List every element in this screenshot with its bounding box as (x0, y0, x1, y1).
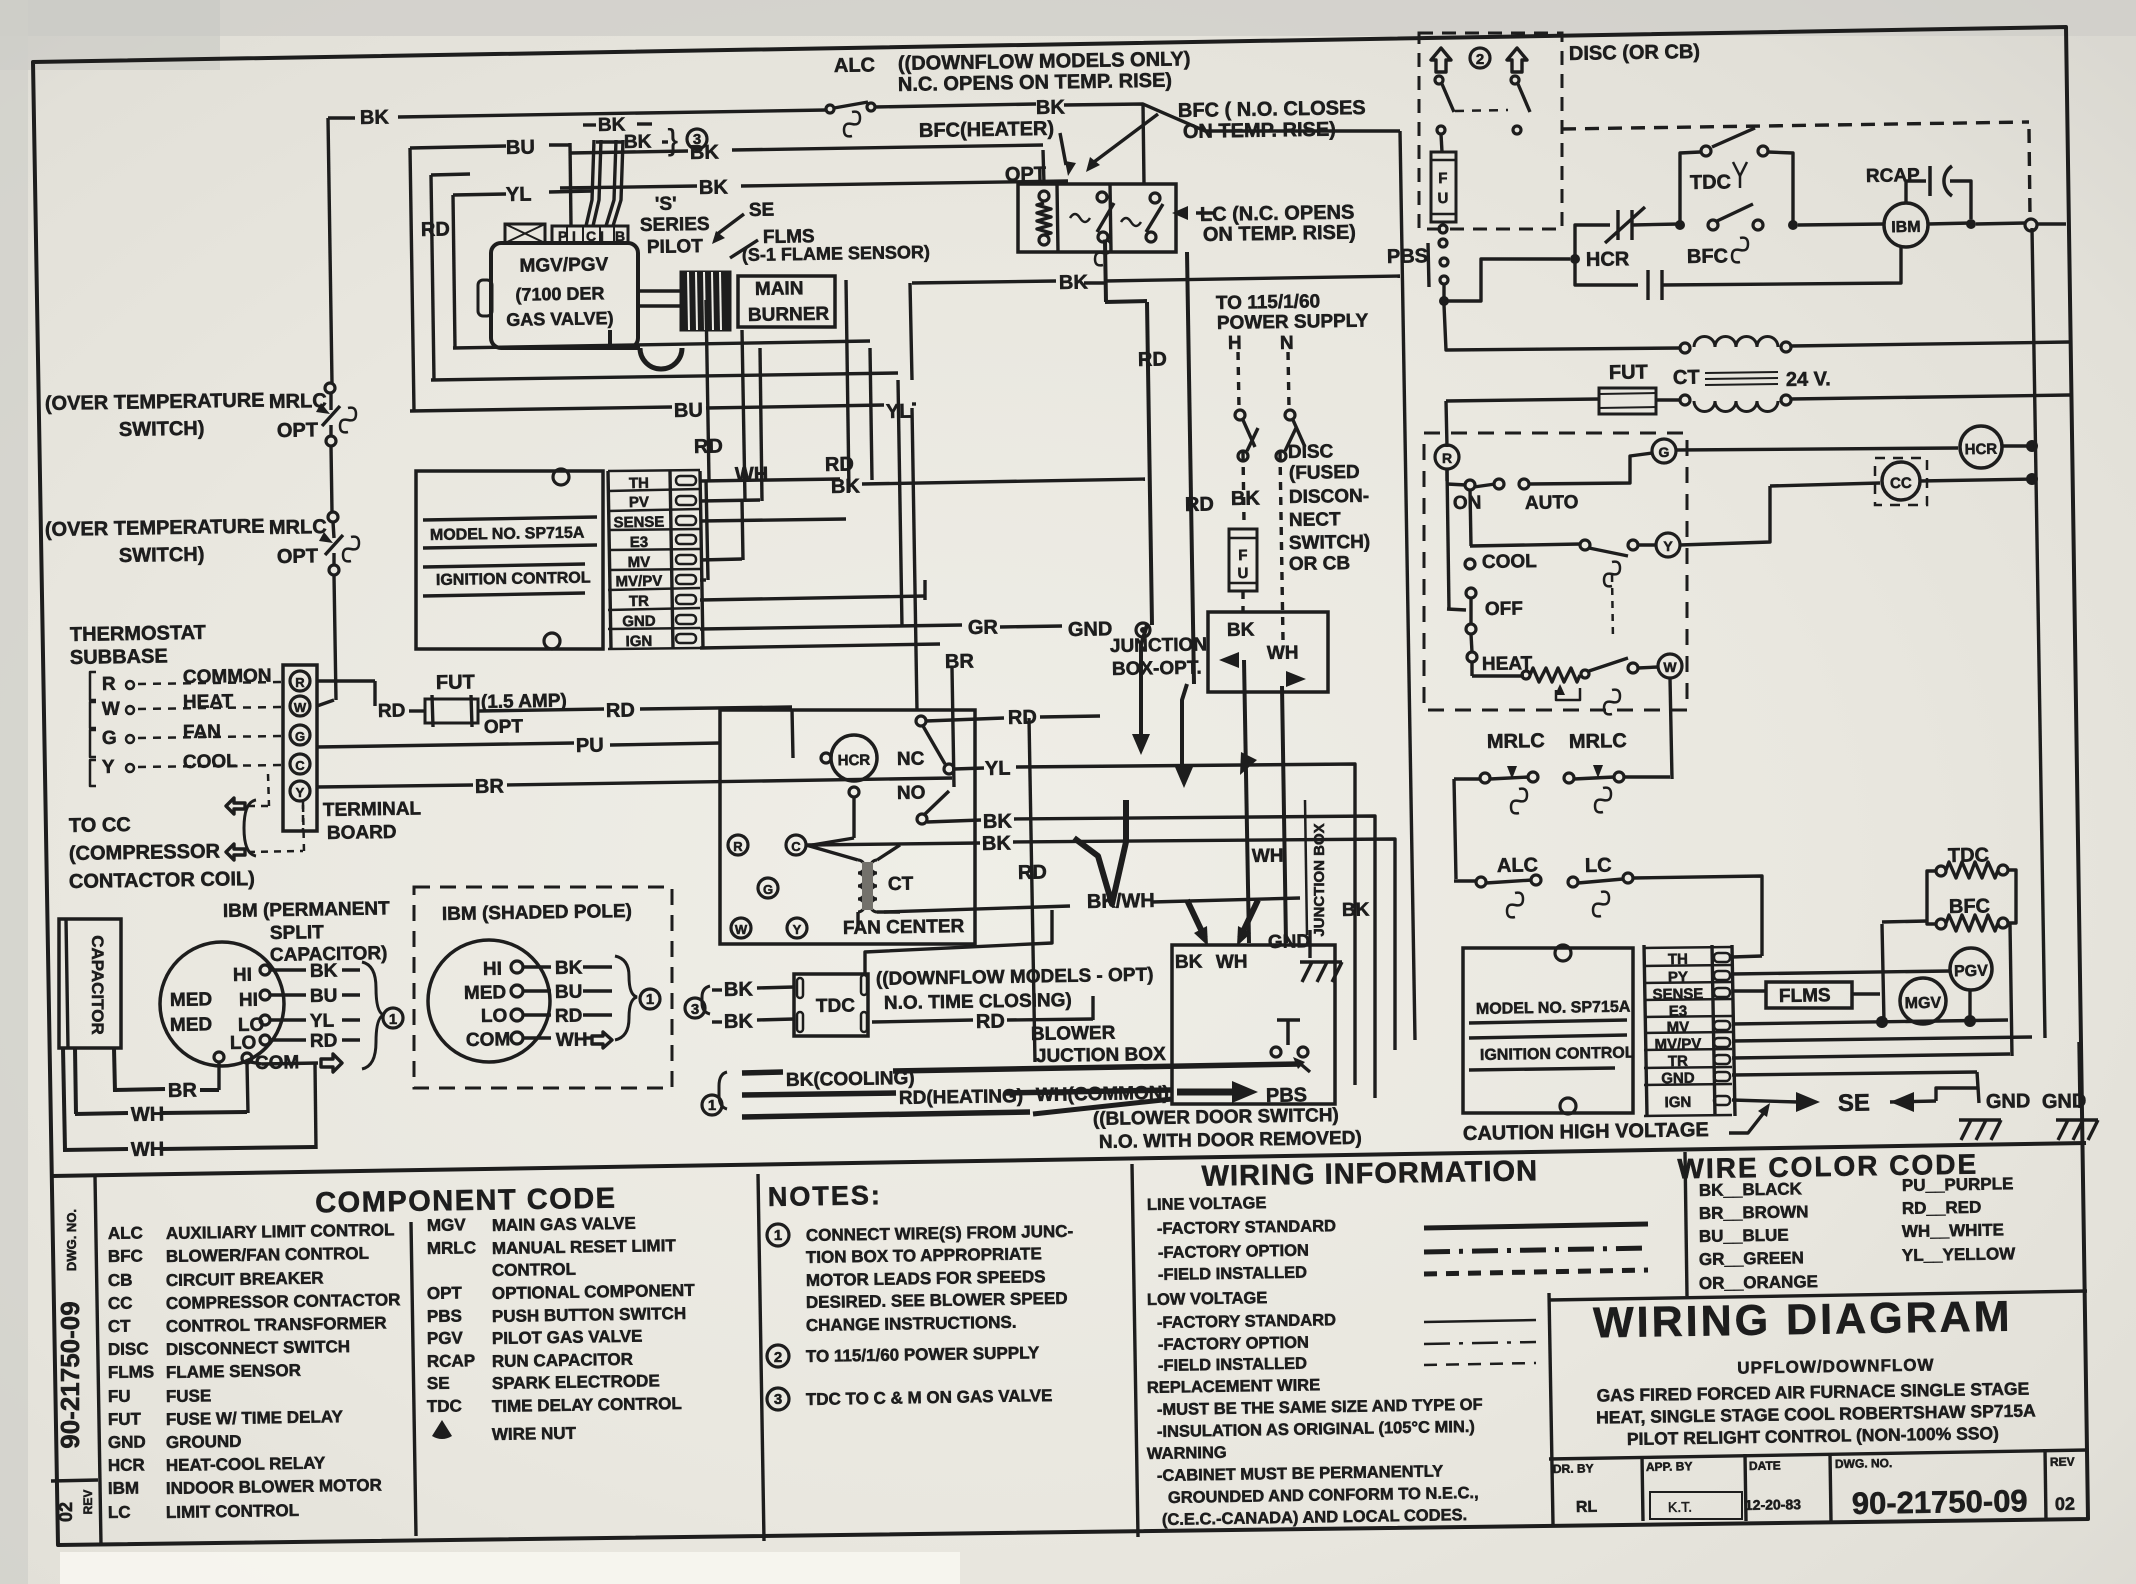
svg-text:AUXILIARY LIMIT CONTROL: AUXILIARY LIMIT CONTROL (166, 1220, 395, 1243)
svg-text:COOL: COOL (1482, 551, 1538, 573)
svg-text:PBS: PBS (1266, 1084, 1307, 1107)
svg-text:N.O. WITH DOOR REMOVED): N.O. WITH DOOR REMOVED) (1099, 1128, 1362, 1153)
svg-text:BK__BLACK: BK__BLACK (1699, 1179, 1803, 1200)
svg-text:IGNITION CONTROL: IGNITION CONTROL (436, 570, 591, 589)
svg-text:1: 1 (708, 1097, 716, 1114)
svg-text:MGV/PGV: MGV/PGV (519, 254, 608, 276)
svg-text:NECT: NECT (1289, 509, 1341, 531)
svg-text:DISC: DISC (1288, 441, 1334, 463)
svg-text:CT: CT (888, 874, 914, 895)
svg-text:C: C (295, 758, 305, 773)
svg-text:OPT: OPT (427, 1283, 463, 1303)
svg-text:TDC: TDC (816, 995, 856, 1017)
svg-text:BK: BK (982, 833, 1012, 855)
svg-text:DATE: DATE (1749, 1458, 1781, 1473)
svg-text:BLOWER/FAN CONTROL: BLOWER/FAN CONTROL (166, 1244, 369, 1266)
svg-text:COMMON: COMMON (183, 666, 272, 688)
svg-text:BU: BU (506, 137, 535, 159)
svg-text:PGV: PGV (1954, 963, 1988, 981)
svg-text:MODEL NO. SP715A: MODEL NO. SP715A (1476, 999, 1631, 1018)
svg-text:G: G (1659, 444, 1670, 460)
svg-text:COMPRESSOR CONTACTOR: COMPRESSOR CONTACTOR (166, 1290, 401, 1313)
svg-text:2: 2 (774, 1349, 782, 1366)
svg-text:Y: Y (793, 922, 802, 937)
svg-text:RD: RD (1138, 349, 1167, 371)
svg-text:BK: BK (1227, 620, 1255, 641)
svg-text:FUSE W/ TIME DELAY: FUSE W/ TIME DELAY (166, 1407, 344, 1429)
svg-text:BK: BK (1231, 488, 1261, 510)
svg-text:BLOWER: BLOWER (1031, 1023, 1116, 1045)
svg-text:'S': 'S' (655, 194, 677, 215)
svg-text:BK: BK (555, 958, 583, 979)
svg-text:RD__RED: RD__RED (1902, 1198, 1982, 1218)
svg-text:JUCTION BOX: JUCTION BOX (1036, 1044, 1166, 1067)
svg-text:OPT: OPT (277, 545, 318, 568)
svg-text:2: 2 (1476, 51, 1484, 68)
svg-text:FUT: FUT (108, 1409, 142, 1429)
svg-text:P: P (558, 228, 567, 244)
svg-text:HI: HI (483, 959, 502, 980)
svg-text:SWITCH): SWITCH) (119, 418, 205, 441)
svg-text:RD: RD (976, 1011, 1005, 1033)
svg-text:CC: CC (1890, 475, 1912, 492)
svg-text:ALC: ALC (834, 54, 875, 77)
svg-text:MAIN: MAIN (755, 278, 804, 300)
svg-text:I: I (600, 228, 604, 244)
svg-text:-FACTORY STANDARD: -FACTORY STANDARD (1157, 1217, 1336, 1238)
svg-text:WH: WH (556, 1029, 588, 1051)
svg-text:WH: WH (131, 1103, 165, 1126)
svg-text:PBS: PBS (1387, 245, 1428, 268)
svg-text:3: 3 (774, 1391, 782, 1408)
svg-text:IGN: IGN (1664, 1094, 1691, 1111)
svg-text:-FIELD INSTALLED: -FIELD INSTALLED (1158, 1355, 1307, 1375)
svg-text:GAS VALVE): GAS VALVE) (506, 308, 614, 330)
svg-text:BK: BK (310, 961, 338, 982)
svg-text:N: N (1280, 333, 1294, 354)
svg-text:REPLACEMENT WIRE: REPLACEMENT WIRE (1147, 1376, 1321, 1397)
svg-text:DISCONNECT SWITCH: DISCONNECT SWITCH (166, 1337, 350, 1359)
svg-text:IBM (SHADED POLE): IBM (SHADED POLE) (442, 901, 632, 925)
svg-text:YL: YL (506, 184, 532, 206)
svg-text:MRLC: MRLC (269, 516, 327, 539)
svg-text:CAUTION HIGH VOLTAGE: CAUTION HIGH VOLTAGE (1463, 1119, 1709, 1145)
svg-text:RD(HEATING): RD(HEATING) (899, 1086, 1024, 1109)
svg-text:PILOT: PILOT (647, 236, 704, 258)
svg-text:BK/WH: BK/WH (1087, 890, 1155, 913)
svg-text:BK: BK (724, 979, 754, 1001)
svg-text:BURNER: BURNER (748, 304, 830, 326)
svg-text:WIRE NUT: WIRE NUT (492, 1424, 577, 1444)
svg-text:02: 02 (56, 1502, 76, 1522)
svg-text:CC: CC (108, 1294, 133, 1313)
svg-text:UPFLOW/DOWNFLOW: UPFLOW/DOWNFLOW (1737, 1355, 1935, 1377)
svg-text:ON: ON (1453, 493, 1482, 514)
svg-text:BK: BK (699, 177, 729, 199)
svg-text:RD: RD (1018, 862, 1047, 884)
svg-text:1: 1 (389, 1011, 397, 1028)
svg-text:RD: RD (825, 454, 854, 476)
svg-text:POWER SUPPLY: POWER SUPPLY (1217, 311, 1369, 334)
svg-text:(FUSED: (FUSED (1289, 462, 1360, 484)
svg-text:IBM (PERMANENT: IBM (PERMANENT (223, 898, 390, 922)
svg-text:OPTIONAL COMPONENT: OPTIONAL COMPONENT (492, 1281, 696, 1303)
svg-text:SPLIT: SPLIT (270, 922, 325, 944)
svg-text:THERMOSTAT: THERMOSTAT (70, 622, 206, 646)
svg-text:U: U (1237, 565, 1248, 582)
svg-text:BU: BU (555, 982, 583, 1003)
svg-text:90-21750-09: 90-21750-09 (1852, 1483, 2028, 1521)
svg-text:W: W (735, 922, 748, 937)
svg-text:MED: MED (464, 982, 507, 1004)
svg-text:PU: PU (576, 735, 604, 757)
svg-text:DWG. NO.: DWG. NO. (64, 1209, 79, 1271)
svg-text:F: F (1438, 170, 1447, 187)
svg-text:CAPACITOR: CAPACITOR (88, 935, 107, 1035)
svg-text:IBM: IBM (108, 1479, 139, 1498)
svg-text:((DOWNFLOW MODELS - OPT): ((DOWNFLOW MODELS - OPT) (876, 965, 1154, 990)
svg-text:DISCON-: DISCON- (1289, 486, 1370, 508)
svg-text:CT: CT (108, 1317, 132, 1336)
svg-text:MANUAL RESET LIMIT: MANUAL RESET LIMIT (492, 1236, 677, 1258)
svg-text:ON TEMP. RISE): ON TEMP. RISE) (1203, 222, 1356, 246)
svg-text:CONTROL TRANSFORMER: CONTROL TRANSFORMER (166, 1313, 387, 1336)
svg-text:RCAP: RCAP (427, 1351, 475, 1371)
svg-text:LO: LO (481, 1006, 508, 1027)
svg-text:IBM: IBM (1891, 219, 1921, 236)
svg-text:HI: HI (239, 990, 258, 1011)
svg-text:R: R (295, 675, 305, 690)
svg-text:TDC: TDC (1690, 171, 1731, 194)
svg-text:WH__WHITE: WH__WHITE (1902, 1220, 2004, 1241)
svg-text:SPARK ELECTRODE: SPARK ELECTRODE (492, 1371, 660, 1393)
svg-text:PUSH BUTTON SWITCH: PUSH BUTTON SWITCH (492, 1304, 687, 1326)
svg-text:BK: BK (831, 476, 861, 498)
svg-text:TERMINAL: TERMINAL (323, 798, 422, 821)
svg-text:RD: RD (555, 1006, 583, 1027)
svg-text:WIRING INFORMATION: WIRING INFORMATION (1201, 1155, 1538, 1192)
svg-text:MRLC: MRLC (1487, 730, 1545, 753)
svg-text:Y: Y (102, 757, 115, 778)
svg-text:RD: RD (378, 701, 406, 722)
svg-text:K.T.: K.T. (1668, 1499, 1692, 1515)
svg-text:B: B (615, 228, 625, 244)
svg-text:I: I (572, 228, 576, 244)
svg-text:ALC: ALC (1497, 854, 1538, 877)
svg-text:BFC(HEATER): BFC(HEATER) (919, 118, 1055, 142)
svg-text:GND: GND (1268, 931, 1311, 953)
svg-text:SUBBASE: SUBBASE (70, 645, 168, 669)
svg-text:OR__ORANGE: OR__ORANGE (1699, 1272, 1818, 1293)
svg-text:CIRCUIT BREAKER: CIRCUIT BREAKER (166, 1268, 324, 1290)
svg-text:SE: SE (1838, 1089, 1870, 1117)
svg-text:G: G (763, 882, 773, 897)
svg-text:COM: COM (466, 1029, 511, 1051)
svg-text:PV: PV (629, 494, 649, 511)
svg-text:R: R (733, 839, 743, 854)
svg-text:GROUND: GROUND (166, 1432, 242, 1452)
svg-text:FU: FU (108, 1387, 131, 1406)
svg-text:HCR: HCR (1965, 441, 1998, 459)
svg-text:DWG. NO.: DWG. NO. (1835, 1456, 1893, 1471)
svg-text:MV/PV: MV/PV (615, 573, 662, 591)
svg-text:RCAP: RCAP (1866, 165, 1920, 187)
svg-text:(S-1 FLAME SENSOR): (S-1 FLAME SENSOR) (742, 242, 930, 265)
svg-text:SE: SE (749, 200, 775, 221)
svg-text:FUT: FUT (1609, 361, 1648, 384)
svg-text:BR: BR (945, 651, 975, 673)
svg-text:BK: BK (598, 115, 626, 136)
svg-text:CONTROL: CONTROL (492, 1260, 576, 1280)
svg-text:INDOOR BLOWER MOTOR: INDOOR BLOWER MOTOR (166, 1476, 382, 1498)
svg-text:WH: WH (1252, 845, 1284, 867)
svg-text:FAN: FAN (183, 721, 221, 743)
svg-text:RD: RD (310, 1031, 338, 1052)
svg-text:MGV: MGV (427, 1215, 467, 1235)
svg-text:RUN CAPACITOR: RUN CAPACITOR (492, 1350, 633, 1371)
svg-text:MOTOR LEADS FOR SPEEDS: MOTOR LEADS FOR SPEEDS (806, 1267, 1046, 1290)
svg-text:HCR: HCR (108, 1455, 145, 1475)
svg-text:Y: Y (296, 785, 305, 800)
svg-text:MRLC: MRLC (269, 390, 327, 413)
svg-text:YL: YL (310, 1011, 335, 1032)
svg-text:BK: BK (724, 1011, 754, 1033)
svg-text:HI: HI (233, 965, 252, 986)
svg-text:TION BOX TO APPROPRIATE: TION BOX TO APPROPRIATE (806, 1244, 1042, 1267)
svg-text:-FACTORY STANDARD: -FACTORY STANDARD (1157, 1311, 1336, 1332)
svg-text:G: G (102, 728, 117, 749)
svg-text:RD: RD (694, 436, 723, 458)
svg-text:CT: CT (1673, 367, 1700, 389)
svg-text:R: R (1442, 450, 1452, 466)
svg-text:OR CB: OR CB (1289, 553, 1351, 575)
svg-text:TDC TO C & M ON GAS VALVE: TDC TO C & M ON GAS VALVE (806, 1386, 1053, 1409)
svg-text:PU__PURPLE: PU__PURPLE (1902, 1174, 2014, 1195)
svg-text:BFC: BFC (108, 1246, 143, 1266)
svg-text:G: G (295, 729, 305, 744)
svg-text:RL: RL (1576, 1499, 1598, 1516)
svg-text:MAIN GAS VALVE: MAIN GAS VALVE (492, 1214, 636, 1235)
svg-text:LIMIT CONTROL: LIMIT CONTROL (166, 1501, 299, 1522)
svg-text:BOX-OPT.: BOX-OPT. (1112, 658, 1202, 680)
svg-text:GND: GND (1986, 1090, 2031, 1113)
svg-text:W: W (1663, 659, 1677, 675)
svg-text:DISC: DISC (108, 1339, 149, 1359)
svg-text:HEAT: HEAT (183, 691, 234, 713)
svg-text:GND: GND (1068, 618, 1113, 641)
svg-text:BK: BK (1175, 952, 1203, 973)
svg-text:BK: BK (1036, 97, 1066, 119)
svg-text:-FACTORY OPTION: -FACTORY OPTION (1158, 1242, 1309, 1262)
svg-text:RD: RD (421, 219, 450, 241)
svg-text:FLMS: FLMS (108, 1362, 155, 1382)
svg-text:BK: BK (690, 142, 720, 164)
svg-text:LO: LO (230, 1033, 257, 1054)
svg-text:BFC: BFC (1687, 245, 1728, 268)
svg-text:NC: NC (897, 749, 925, 770)
svg-text:90-21750-09: 90-21750-09 (55, 1301, 85, 1448)
svg-text:JUNCTION BOX: JUNCTION BOX (1311, 823, 1328, 936)
svg-text:SWITCH): SWITCH) (119, 544, 205, 567)
svg-text:BU: BU (310, 986, 338, 1007)
svg-text:FUSE: FUSE (166, 1386, 212, 1406)
svg-text:BR: BR (475, 776, 505, 798)
svg-text:WH: WH (1216, 951, 1248, 973)
svg-text:JUNCTION: JUNCTION (1110, 634, 1207, 657)
svg-text:LOW VOLTAGE: LOW VOLTAGE (1147, 1289, 1268, 1309)
svg-text:24 V.: 24 V. (1786, 368, 1831, 391)
svg-text:ALC: ALC (108, 1223, 143, 1243)
svg-text:BK: BK (983, 811, 1013, 833)
svg-text:F: F (1238, 547, 1247, 564)
svg-text:BOARD: BOARD (327, 822, 397, 844)
svg-text:PILOT GAS VALVE: PILOT GAS VALVE (492, 1327, 643, 1348)
svg-text:ON TEMP. RISE): ON TEMP. RISE) (1183, 119, 1336, 143)
svg-text:(OVER TEMPERATURE: (OVER TEMPERATURE (45, 389, 265, 415)
svg-text:RD: RD (606, 700, 635, 722)
svg-text:BR: BR (168, 1080, 198, 1102)
svg-text:W: W (294, 700, 307, 715)
svg-text:BK: BK (360, 107, 390, 129)
svg-text:MRLC: MRLC (427, 1238, 476, 1258)
svg-text:COOL: COOL (183, 751, 239, 773)
svg-text:02: 02 (2055, 1494, 2075, 1514)
svg-text:BU__BLUE: BU__BLUE (1699, 1226, 1789, 1246)
svg-text:TO CC: TO CC (69, 814, 131, 837)
svg-text:((BLOWER DOOR SWITCH): ((BLOWER DOOR SWITCH) (1093, 1105, 1339, 1130)
svg-text:(OVER TEMPERATURE: (OVER TEMPERATURE (45, 515, 265, 541)
svg-text:LC: LC (108, 1503, 131, 1522)
svg-text:REV: REV (81, 1490, 95, 1515)
svg-text:BFC ( N.O. CLOSES: BFC ( N.O. CLOSES (1178, 97, 1366, 122)
svg-text:BR__BROWN: BR__BROWN (1699, 1202, 1809, 1223)
svg-text:MRLC: MRLC (1569, 730, 1627, 753)
svg-text:H: H (1228, 333, 1242, 354)
svg-text:BU: BU (674, 400, 703, 422)
svg-text:TO 115/1/60 POWER SUPPLY: TO 115/1/60 POWER SUPPLY (806, 1343, 1040, 1366)
svg-text:DISC (OR CB): DISC (OR CB) (1569, 41, 1700, 65)
svg-text:WIRING DIAGRAM: WIRING DIAGRAM (1593, 1293, 2013, 1348)
svg-text:WARNING: WARNING (1147, 1444, 1227, 1463)
svg-text:C: C (586, 228, 596, 244)
svg-text:NOTES:: NOTES: (768, 1180, 882, 1212)
svg-text:HCR: HCR (838, 752, 871, 770)
svg-text:OPT: OPT (277, 419, 318, 442)
svg-text:GR__GREEN: GR__GREEN (1699, 1248, 1804, 1269)
svg-text:MED: MED (170, 989, 213, 1011)
svg-text:REV: REV (2050, 1455, 2075, 1469)
svg-text:AUTO: AUTO (1525, 492, 1579, 514)
svg-text:BFC: BFC (1949, 895, 1990, 918)
svg-text:SWITCH): SWITCH) (1289, 532, 1371, 554)
svg-text:OFF: OFF (1485, 598, 1523, 620)
svg-text:WH: WH (131, 1138, 165, 1161)
svg-text:MODEL NO. SP715A: MODEL NO. SP715A (430, 525, 585, 544)
svg-text:FAN CENTER: FAN CENTER (843, 916, 965, 939)
svg-text:BK: BK (1342, 900, 1370, 921)
svg-text:FUT: FUT (436, 671, 475, 694)
svg-text:W: W (102, 699, 120, 720)
svg-text:N.C. OPENS ON TEMP. RISE): N.C. OPENS ON TEMP. RISE) (898, 70, 1172, 96)
svg-text:PGV: PGV (427, 1328, 464, 1348)
svg-text:MED: MED (170, 1014, 213, 1036)
svg-text:PBS: PBS (427, 1306, 462, 1326)
svg-text:TO 115/1/60: TO 115/1/60 (1216, 291, 1321, 314)
svg-text:R: R (102, 674, 116, 695)
svg-text:U: U (1437, 190, 1448, 207)
svg-text:TIME DELAY CONTROL: TIME DELAY CONTROL (492, 1394, 682, 1416)
svg-text:DR. BY: DR. BY (1553, 1461, 1594, 1476)
svg-text:TDC: TDC (1948, 844, 1989, 867)
svg-text:(7100 DER: (7100 DER (515, 283, 604, 304)
svg-text:HEAT-COOL RELAY: HEAT-COOL RELAY (166, 1453, 326, 1475)
svg-text:IGNITION CONTROL: IGNITION CONTROL (1480, 1045, 1635, 1064)
svg-text:TR: TR (629, 593, 649, 610)
svg-text:YL: YL (985, 758, 1011, 780)
svg-text:OPT: OPT (484, 716, 524, 738)
svg-text:GND: GND (108, 1432, 146, 1452)
svg-text:3: 3 (691, 1001, 699, 1018)
svg-text:Y: Y (1663, 538, 1673, 554)
svg-text:YL__YELLOW: YL__YELLOW (1902, 1244, 2017, 1265)
svg-text:CB: CB (108, 1271, 133, 1290)
svg-text:NO: NO (897, 783, 926, 804)
svg-text:GR: GR (968, 617, 999, 639)
svg-text:FLMS: FLMS (1779, 985, 1831, 1007)
svg-text:C: C (791, 839, 801, 854)
svg-text:APP. BY: APP. BY (1646, 1459, 1693, 1474)
svg-text:1: 1 (646, 991, 654, 1008)
svg-text:-FIELD INSTALLED: -FIELD INSTALLED (1158, 1264, 1307, 1284)
svg-text:CONTACTOR COIL): CONTACTOR COIL) (69, 868, 255, 893)
svg-text:HCR: HCR (1586, 248, 1630, 271)
svg-text:-FACTORY OPTION: -FACTORY OPTION (1158, 1334, 1309, 1354)
svg-text:FLAME SENSOR: FLAME SENSOR (166, 1361, 301, 1382)
svg-text:LC: LC (1585, 855, 1612, 877)
svg-text:RD: RD (1008, 707, 1037, 729)
svg-text:SE: SE (427, 1374, 450, 1393)
svg-text:LINE VOLTAGE: LINE VOLTAGE (1147, 1194, 1267, 1214)
svg-text:CHANGE INSTRUCTIONS.: CHANGE INSTRUCTIONS. (806, 1313, 1017, 1335)
svg-text:1: 1 (774, 1227, 782, 1244)
svg-text:12-20-83: 12-20-83 (1745, 1496, 1802, 1513)
svg-text:WH: WH (1267, 642, 1299, 664)
svg-text:SERIES: SERIES (640, 214, 710, 236)
svg-text:(COMPRESSOR: (COMPRESSOR (69, 841, 221, 865)
svg-text:MGV: MGV (1905, 995, 1942, 1013)
svg-text:RD: RD (1185, 494, 1214, 516)
svg-text:TDC: TDC (427, 1396, 462, 1416)
svg-text:BK: BK (624, 132, 652, 153)
